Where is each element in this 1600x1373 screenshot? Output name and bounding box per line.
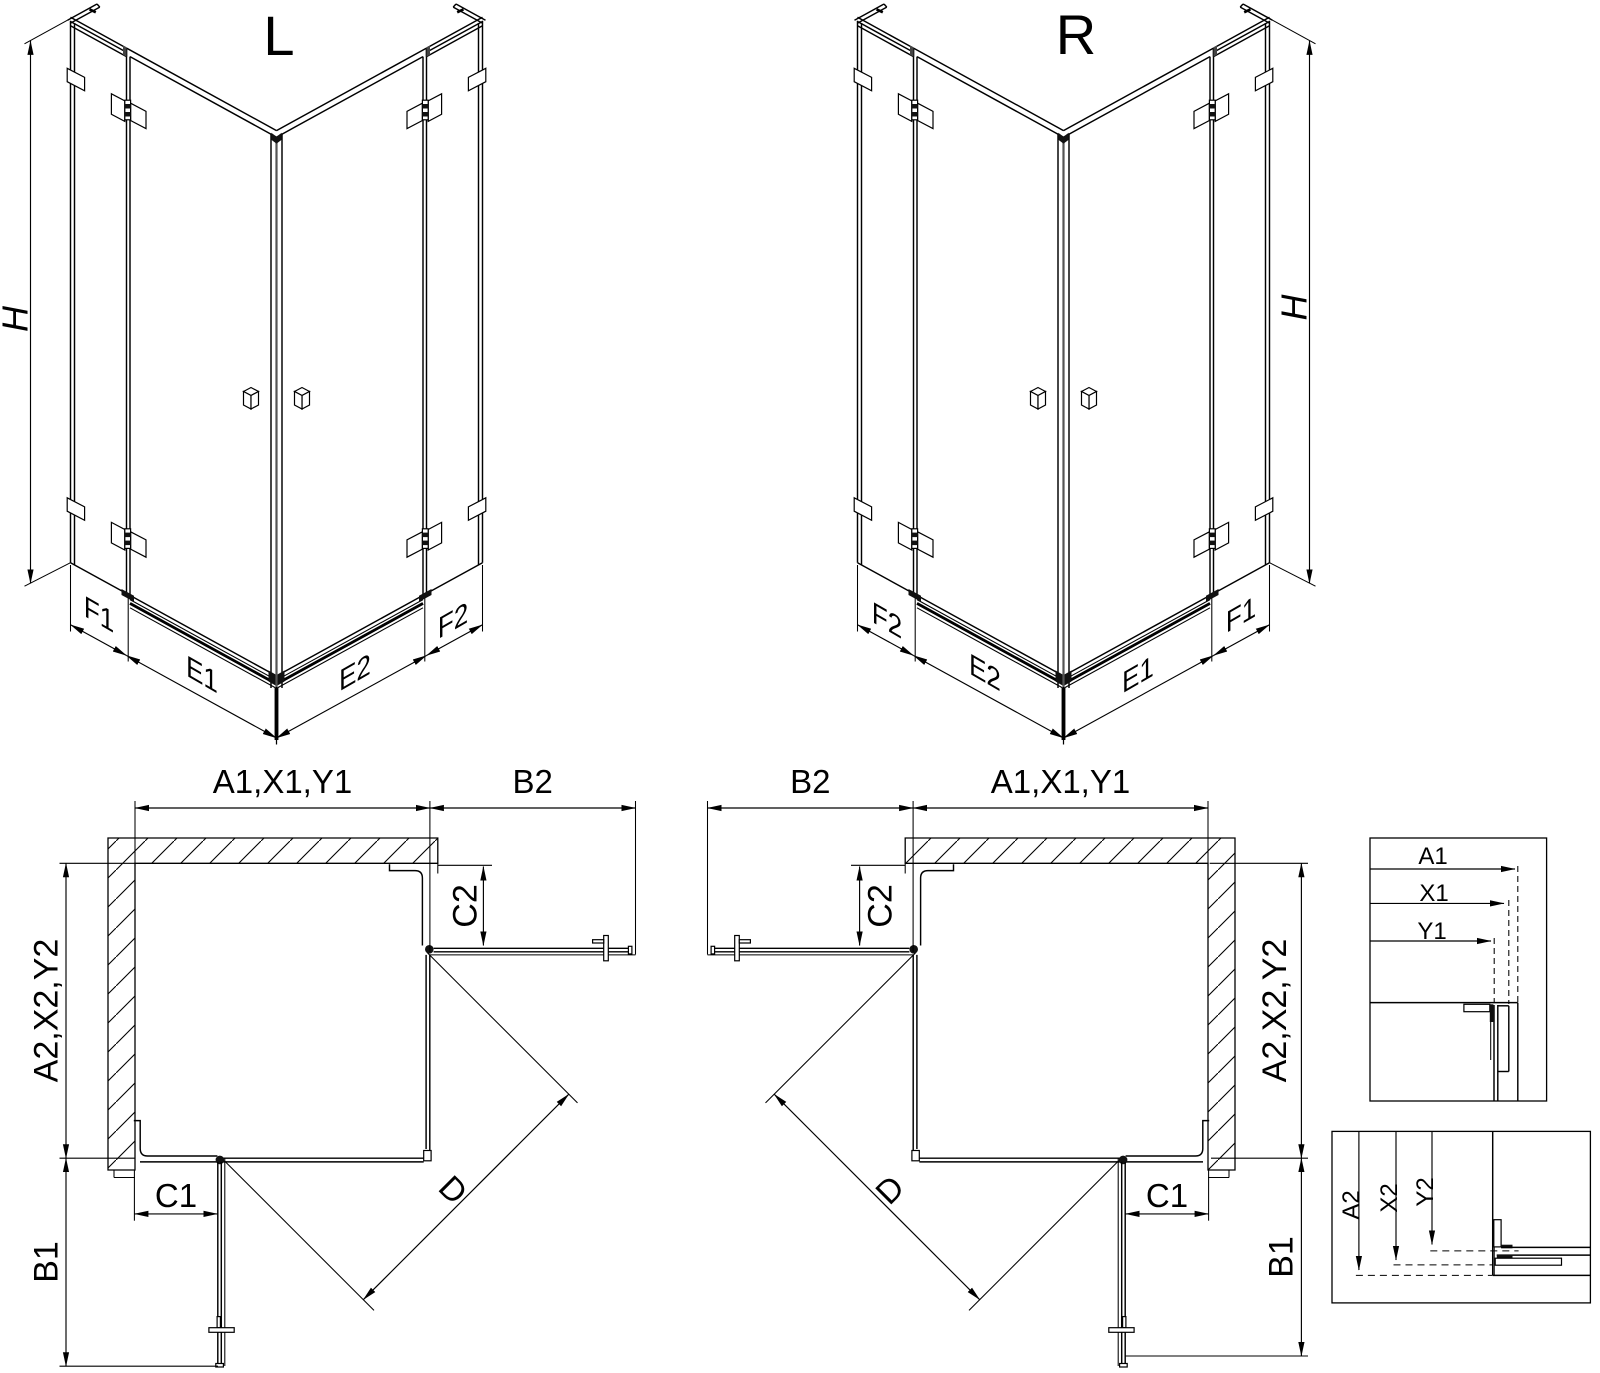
svg-text:D: D	[432, 1168, 475, 1211]
svg-text:C2: C2	[862, 884, 900, 927]
svg-text:E1: E1	[186, 649, 218, 700]
svg-text:H: H	[0, 305, 36, 332]
svg-text:E2: E2	[969, 647, 1001, 698]
svg-text:B2: B2	[790, 763, 830, 800]
svg-text:B1: B1	[1263, 1236, 1301, 1278]
svg-text:F2: F2	[438, 596, 468, 647]
svg-text:H: H	[1274, 294, 1315, 321]
svg-text:F2: F2	[872, 596, 902, 647]
svg-text:A1,X1,Y1: A1,X1,Y1	[213, 763, 352, 800]
svg-text:X2: X2	[1376, 1183, 1403, 1212]
svg-text:A2,X2,Y2: A2,X2,Y2	[28, 939, 66, 1083]
svg-text:A1: A1	[1418, 843, 1447, 870]
svg-text:A2,X2,Y2: A2,X2,Y2	[1256, 939, 1294, 1083]
svg-text:C1: C1	[1146, 1177, 1188, 1214]
svg-text:C1: C1	[155, 1177, 197, 1214]
svg-text:C2: C2	[447, 884, 485, 927]
svg-text:Y2: Y2	[1412, 1177, 1439, 1206]
svg-text:E1: E1	[1122, 649, 1154, 700]
svg-text:F1: F1	[1226, 590, 1256, 641]
svg-text:D: D	[868, 1168, 911, 1211]
svg-text:X1: X1	[1419, 880, 1448, 907]
svg-text:B1: B1	[28, 1241, 66, 1283]
svg-text:A2: A2	[1338, 1190, 1365, 1219]
svg-text:R: R	[1056, 3, 1096, 66]
svg-text:Y1: Y1	[1417, 918, 1446, 945]
svg-text:B2: B2	[513, 763, 553, 800]
svg-text:F1: F1	[84, 590, 114, 641]
svg-text:A1,X1,Y1: A1,X1,Y1	[991, 763, 1130, 800]
svg-text:L: L	[263, 4, 294, 67]
svg-text:E2: E2	[339, 647, 371, 698]
